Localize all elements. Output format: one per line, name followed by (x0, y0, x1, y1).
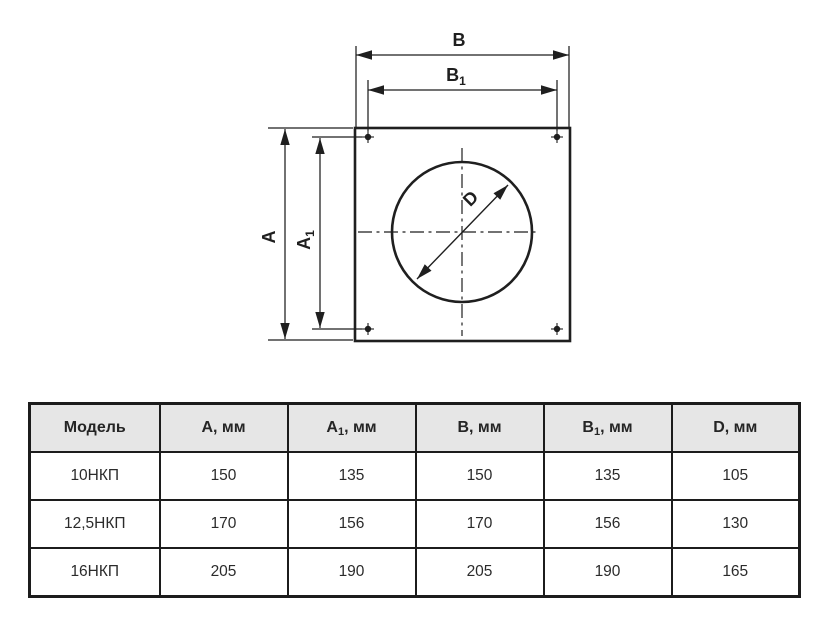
cell-d: 130 (672, 500, 800, 548)
dimension-drawing: B B1 A A1 D (0, 0, 834, 398)
cell-d: 105 (672, 452, 800, 500)
cell-a1: 190 (288, 548, 416, 597)
hole-marker-top-right (551, 131, 563, 143)
dim-label-b1: B1 (446, 65, 466, 88)
cell-model: 16НКП (30, 548, 160, 597)
hole-marker-bottom-right (551, 323, 563, 335)
header-a: А, мм (160, 404, 288, 453)
table-header-row: Модель А, мм А1, мм В, мм В1, мм D, мм (30, 404, 800, 453)
header-model: Модель (30, 404, 160, 453)
cell-b: 150 (416, 452, 544, 500)
header-a1: А1, мм (288, 404, 416, 453)
dim-label-b: B (453, 30, 466, 50)
dim-label-a: A (259, 231, 279, 244)
dimensions-table: Модель А, мм А1, мм В, мм В1, мм D, мм 1… (28, 402, 801, 598)
table-row: 16НКП 205 190 205 190 165 (30, 548, 800, 597)
cell-a: 205 (160, 548, 288, 597)
cell-b: 205 (416, 548, 544, 597)
hole-marker-bottom-left (362, 323, 374, 335)
page-canvas: B B1 A A1 D (0, 0, 834, 625)
cell-model: 12,5НКП (30, 500, 160, 548)
cell-b1: 156 (544, 500, 672, 548)
header-b: В, мм (416, 404, 544, 453)
cell-b1: 135 (544, 452, 672, 500)
center-lines (358, 148, 540, 336)
cell-a1: 135 (288, 452, 416, 500)
cell-b1: 190 (544, 548, 672, 597)
cell-a: 170 (160, 500, 288, 548)
header-d: D, мм (672, 404, 800, 453)
header-b1: В1, мм (544, 404, 672, 453)
dimension-b1: B1 (368, 65, 557, 131)
table-row: 10НКП 150 135 150 135 105 (30, 452, 800, 500)
dimension-a1: A1 (294, 137, 362, 329)
cell-a1: 156 (288, 500, 416, 548)
cell-a: 150 (160, 452, 288, 500)
hole-marker-top-left (362, 131, 374, 143)
table-row: 12,5НКП 170 156 170 156 130 (30, 500, 800, 548)
header-model-label: Модель (64, 419, 126, 436)
cell-d: 165 (672, 548, 800, 597)
dim-label-a1: A1 (294, 230, 317, 250)
cell-b: 170 (416, 500, 544, 548)
cell-model: 10НКП (30, 452, 160, 500)
